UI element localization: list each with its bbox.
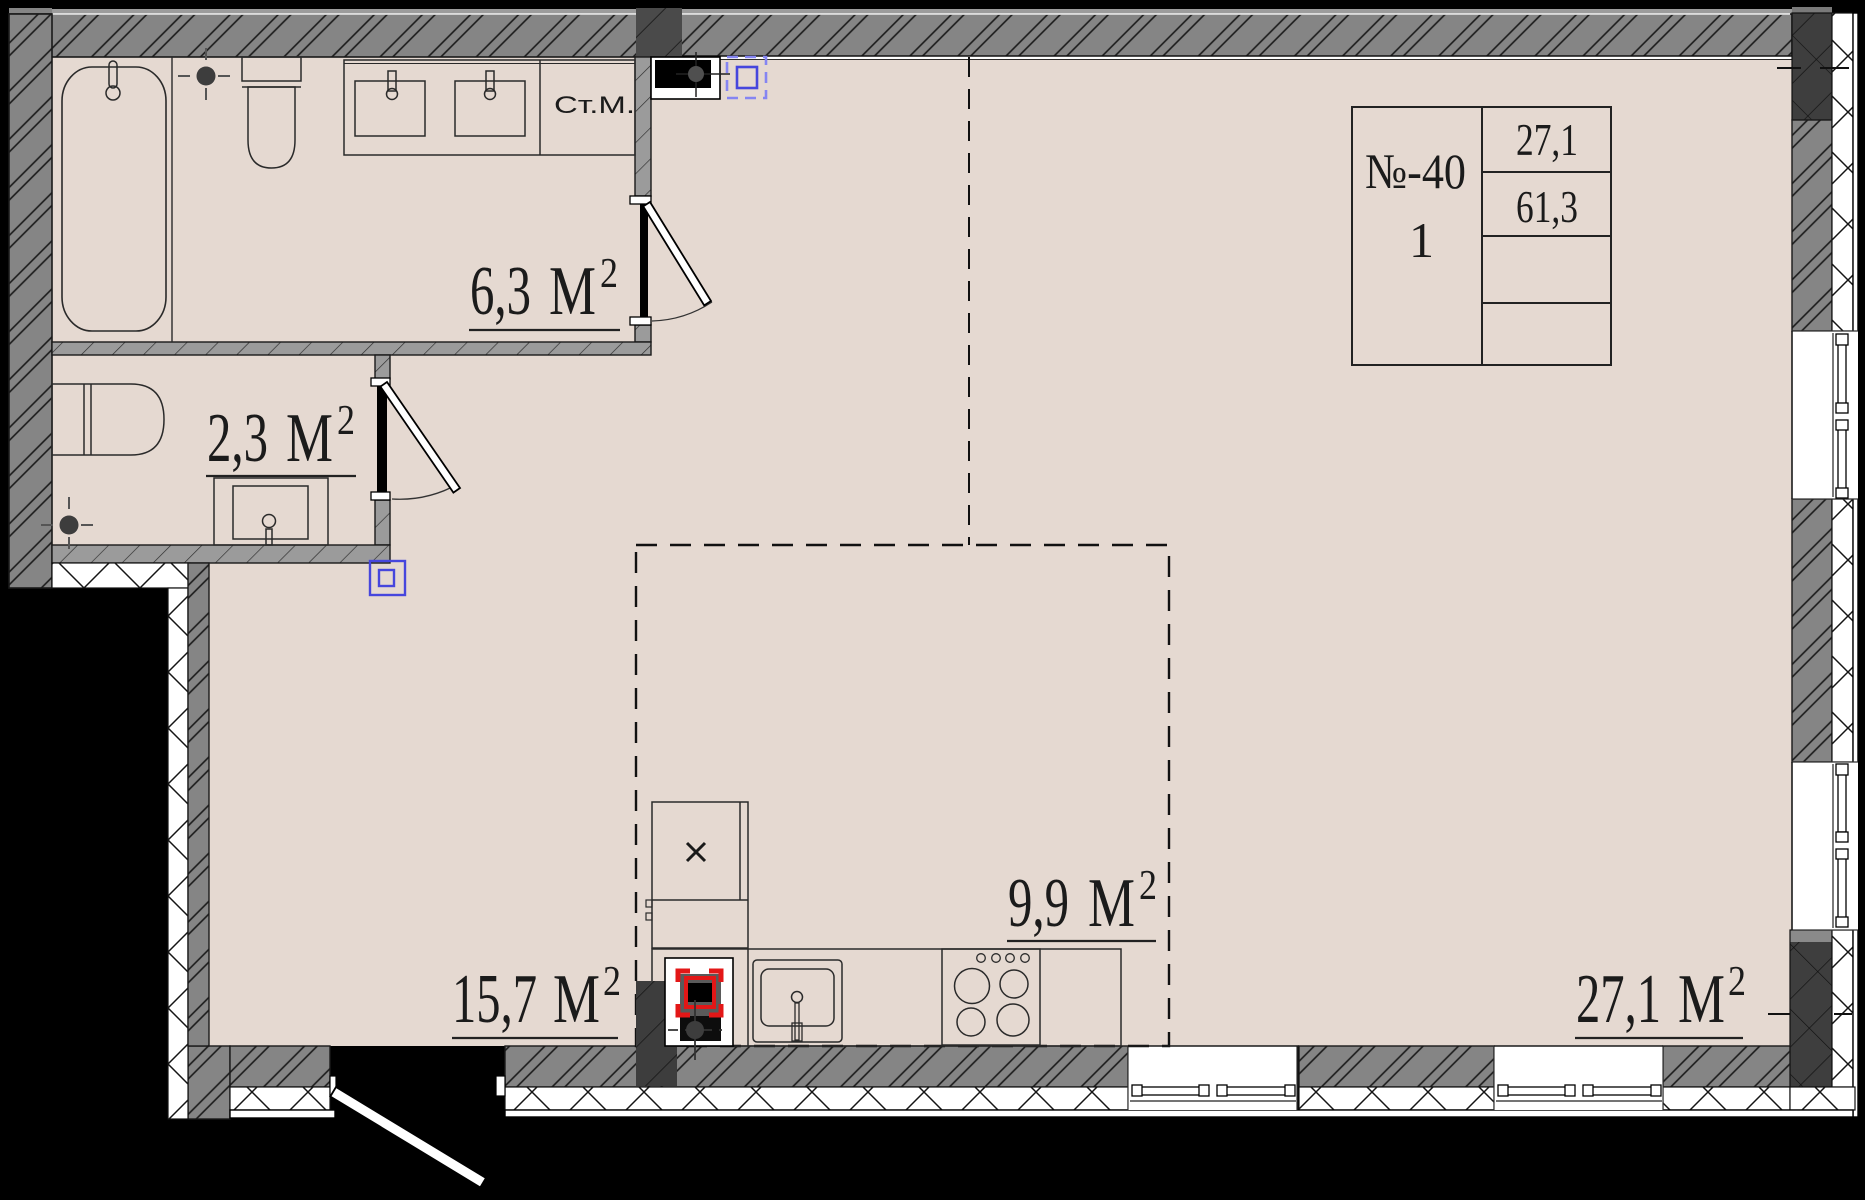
svg-text:М: М (549, 253, 596, 330)
svg-text:М: М (1678, 961, 1725, 1038)
svg-text:9,9: 9,9 (1008, 865, 1069, 942)
svg-text:15,7: 15,7 (452, 961, 537, 1038)
svg-text:61,3: 61,3 (1516, 182, 1578, 232)
svg-text:6,3: 6,3 (470, 253, 531, 330)
svg-text:№-40: №-40 (1365, 143, 1466, 199)
svg-text:2: 2 (337, 398, 355, 444)
svg-text:27,1: 27,1 (1516, 115, 1578, 165)
svg-text:2: 2 (600, 251, 618, 297)
svg-text:М: М (553, 961, 600, 1038)
svg-text:М: М (286, 400, 333, 477)
svg-text:2: 2 (603, 959, 621, 1005)
svg-text:Ст.М.: Ст.М. (554, 92, 635, 119)
svg-text:1: 1 (1409, 212, 1434, 268)
svg-text:27,1: 27,1 (1576, 961, 1661, 1038)
svg-text:2: 2 (1139, 863, 1157, 909)
svg-text:2: 2 (1728, 959, 1746, 1005)
svg-text:М: М (1088, 865, 1135, 942)
svg-text:2,3: 2,3 (207, 400, 268, 477)
